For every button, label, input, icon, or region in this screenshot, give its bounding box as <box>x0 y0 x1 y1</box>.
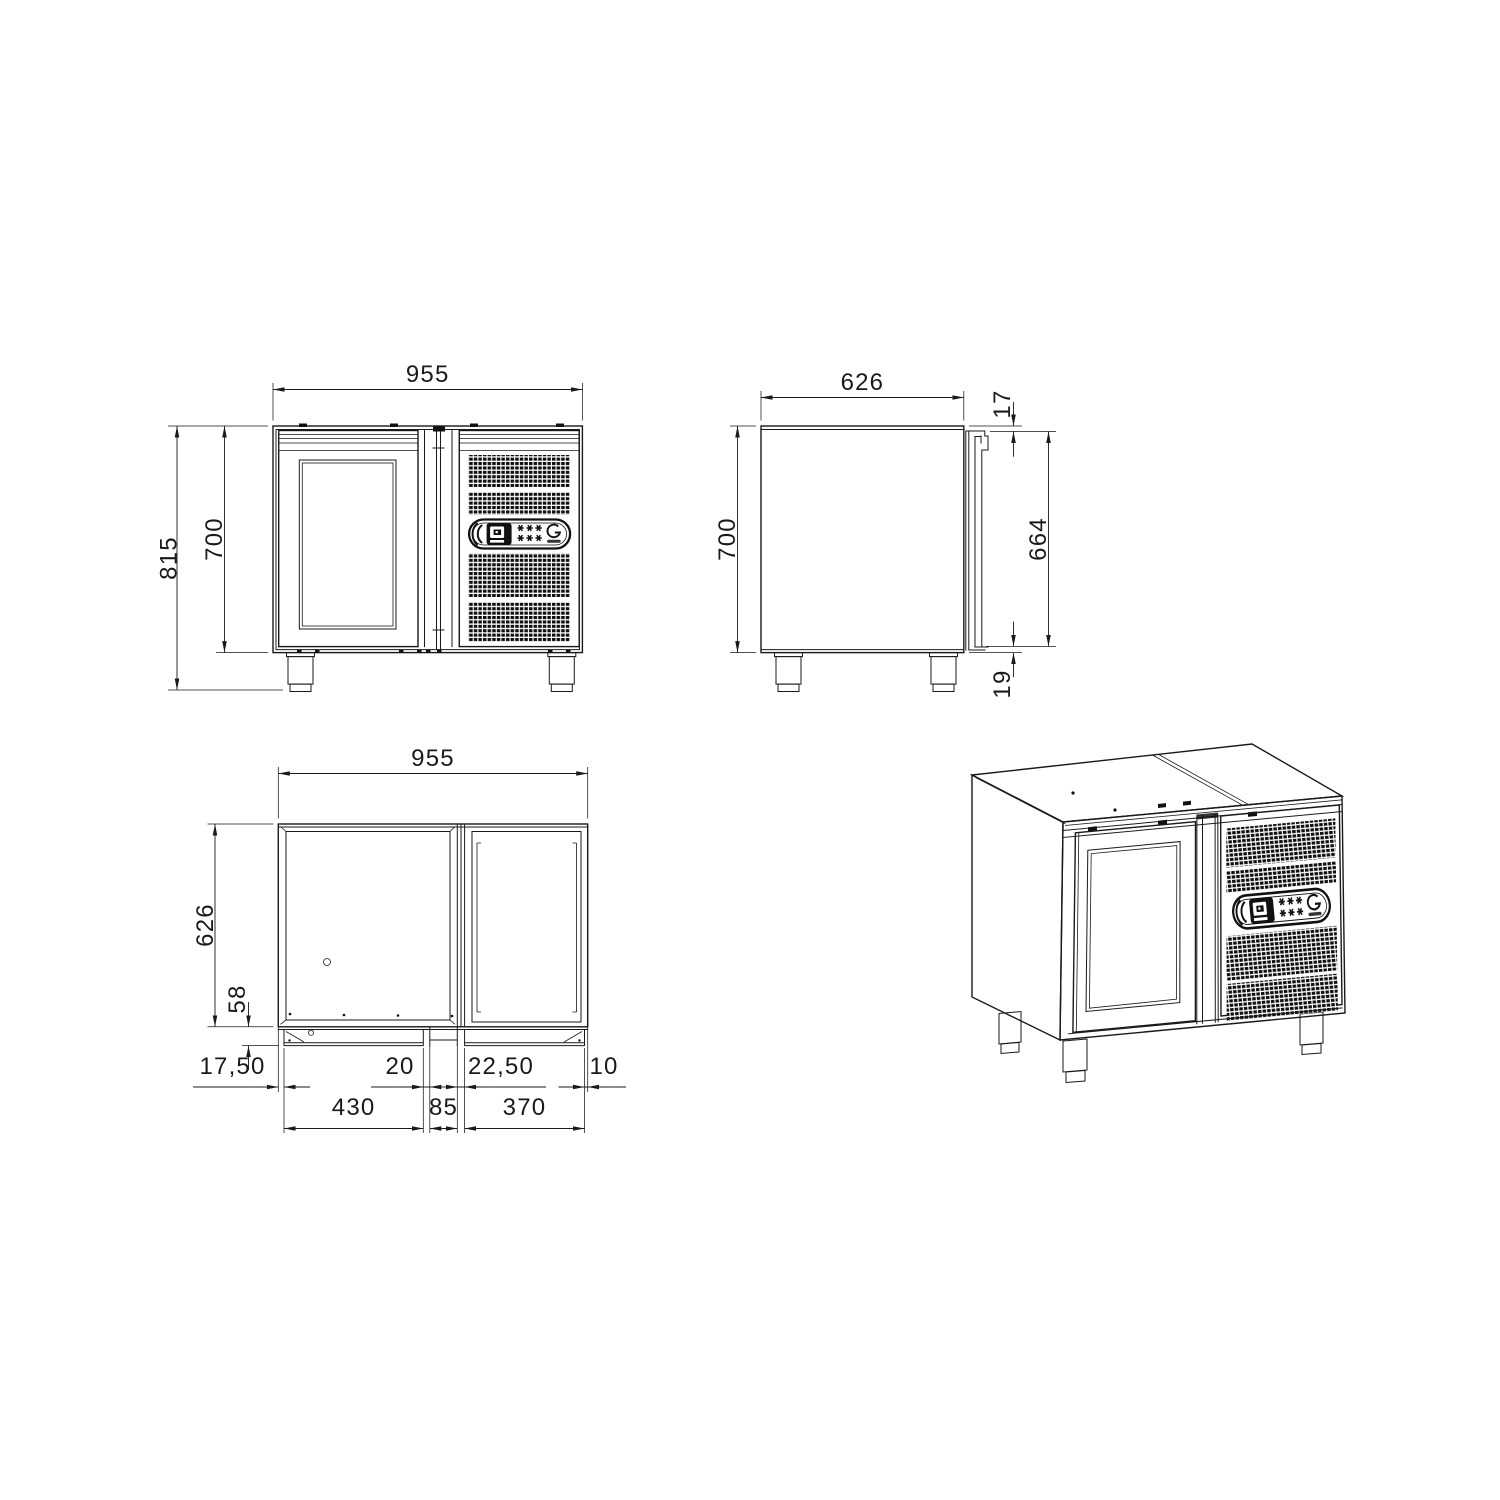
grille-band <box>468 553 570 597</box>
grille-band <box>468 492 570 515</box>
plan-left-margin-label: 17,50 <box>199 1053 265 1080</box>
front-width-label: 955 <box>406 361 450 388</box>
front-body-height-label: 700 <box>201 517 228 561</box>
plan-left-gap-label: 20 <box>385 1053 414 1080</box>
technical-drawing-page: 955 815 700 626 70 <box>0 0 1500 1500</box>
grille-band <box>1227 926 1338 981</box>
plan-center-post-label: 85 <box>429 1094 458 1121</box>
plan-dimensions: 955 626 58 17,50 20 22,50 10 430 85 370 <box>192 745 626 1133</box>
side-door-top-offset-label: 17 <box>989 389 1016 418</box>
side-depth-label: 626 <box>841 369 885 396</box>
grille-band <box>1226 818 1336 867</box>
side-view: 626 700 17 664 19 <box>714 369 1056 699</box>
grille-band <box>468 602 570 642</box>
iso-center-post <box>1197 814 1218 1024</box>
plan-right-door-width-label: 370 <box>503 1094 547 1121</box>
front-view: 955 815 700 <box>156 361 583 692</box>
plan-door-protrusion-label: 58 <box>224 984 251 1013</box>
grille-band <box>468 455 570 487</box>
plan-cabinet-body <box>278 824 587 1027</box>
front-total-height-label: 815 <box>156 536 183 580</box>
plan-right-gap-label: 22,50 <box>468 1053 534 1080</box>
side-door-bottom-gap-label: 19 <box>989 669 1016 698</box>
front-center-post <box>418 431 459 650</box>
iso-feet <box>999 1012 1323 1083</box>
extension-lines <box>730 391 1056 653</box>
control-badge-iso <box>1232 888 1332 930</box>
plan-right-margin-label: 10 <box>589 1053 618 1080</box>
plan-right-compartment <box>472 832 581 1023</box>
plan-door-band <box>278 1027 587 1046</box>
plan-width-label: 955 <box>411 745 455 772</box>
control-badge-front <box>469 520 570 549</box>
plan-view: 955 626 58 17,50 20 22,50 10 430 85 370 <box>192 745 626 1133</box>
iso-left-face <box>972 775 1063 1040</box>
iso-door-glass-window <box>1086 842 1180 1012</box>
side-feet <box>775 653 958 692</box>
iso-bottom-rail <box>1069 1008 1342 1034</box>
plan-depth-label: 626 <box>192 903 219 947</box>
plan-left-compartment <box>286 832 450 1021</box>
front-door-glass-window <box>299 460 396 629</box>
side-body-height-label: 700 <box>714 517 741 561</box>
isometric-view <box>972 744 1345 1083</box>
side-cabinet-body <box>761 426 964 653</box>
plan-hole <box>324 959 331 966</box>
front-feet <box>287 653 576 692</box>
technical-drawing-canvas: 955 815 700 626 70 <box>0 0 1500 1500</box>
side-door-profile <box>966 431 988 650</box>
plan-left-door-width-label: 430 <box>332 1094 376 1121</box>
door-top-rails <box>279 435 580 451</box>
plan-divider <box>457 824 464 1027</box>
side-door-height-label: 664 <box>1025 517 1052 561</box>
